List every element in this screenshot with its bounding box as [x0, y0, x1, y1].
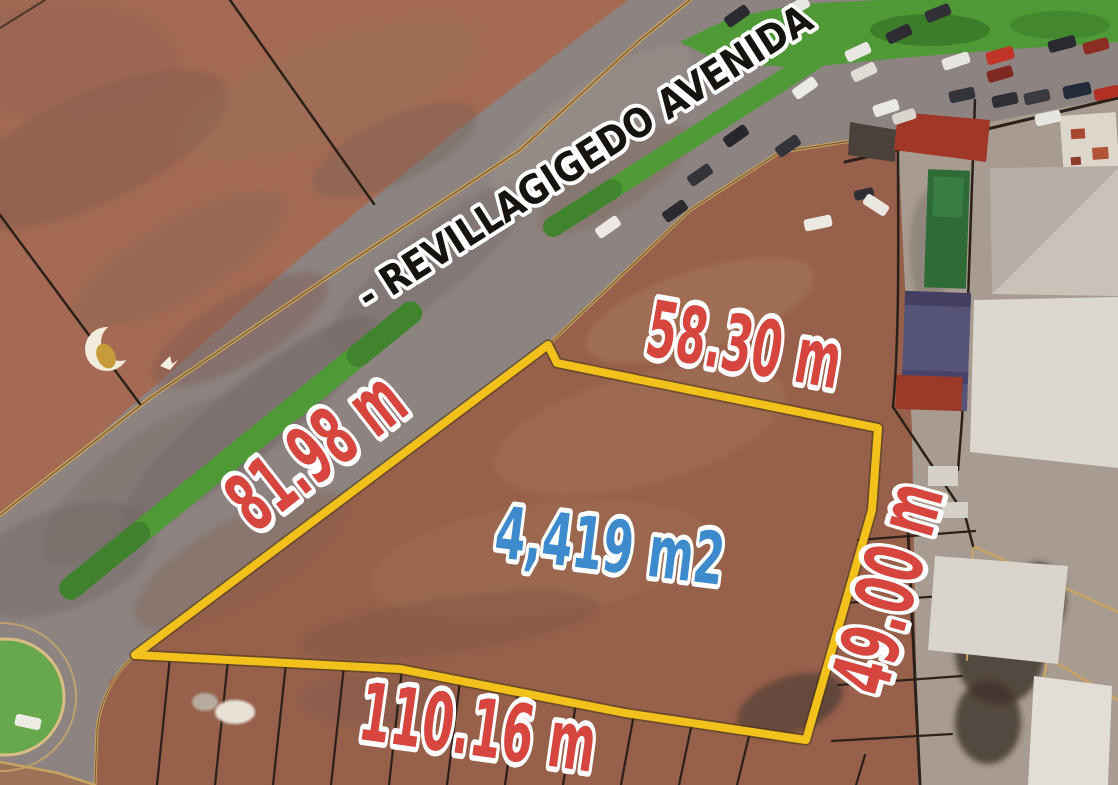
building-white-large: [970, 297, 1118, 468]
building-white-roof-br-1: [928, 556, 1068, 664]
building-red-patch: [895, 375, 962, 411]
map-graphics: - REVILLAGIGEDO AVENIDA 58.30 m 81.98 m …: [0, 0, 1118, 785]
building-small-white-1: [928, 466, 958, 486]
building-white-roof-br-2: [1028, 676, 1112, 785]
structure-gray-blob: [192, 693, 218, 711]
satellite-map: - REVILLAGIGEDO AVENIDA 58.30 m 81.98 m …: [0, 0, 1118, 785]
building-green-roof: [924, 169, 970, 288]
structure-white-blob: [215, 700, 255, 724]
